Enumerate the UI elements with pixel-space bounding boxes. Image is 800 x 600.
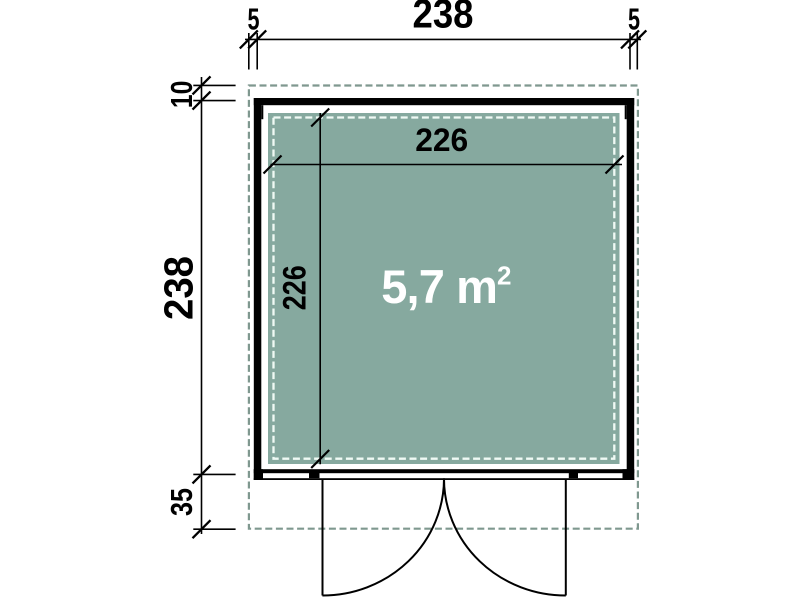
svg-text:10: 10 [164,81,199,109]
svg-text:5: 5 [628,2,640,37]
svg-text:238: 238 [155,256,201,320]
svg-text:35: 35 [164,488,199,516]
svg-text:5: 5 [248,2,260,37]
svg-text:226: 226 [415,122,468,158]
svg-text:226: 226 [277,265,313,310]
svg-text:238: 238 [413,0,474,37]
svg-text:5,7 m2: 5,7 m2 [381,260,511,313]
